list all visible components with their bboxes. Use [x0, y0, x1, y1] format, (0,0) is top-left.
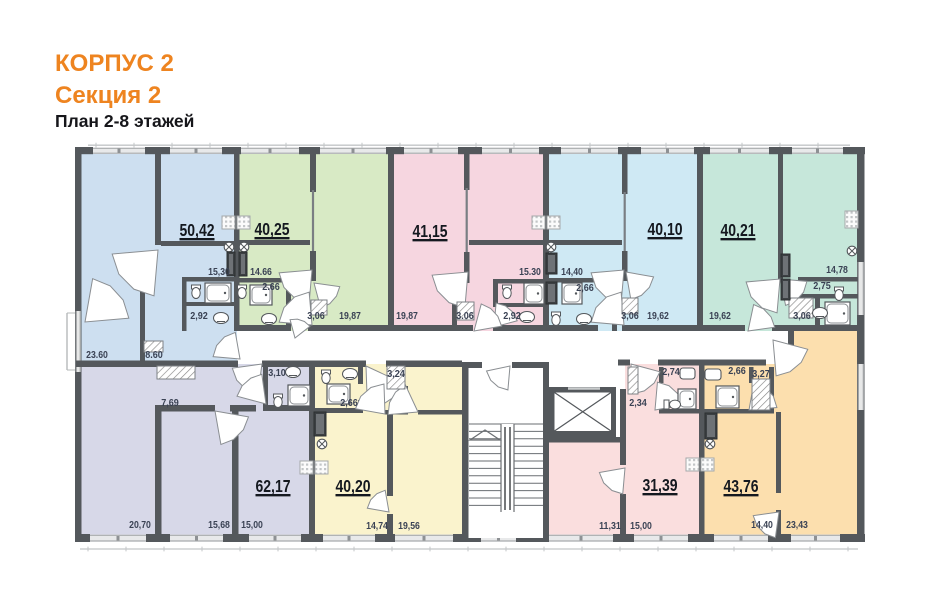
svg-text:14,40: 14,40 — [751, 520, 773, 531]
svg-text:2,34: 2,34 — [629, 398, 647, 409]
svg-text:41,15: 41,15 — [413, 221, 448, 241]
svg-text:40,10: 40,10 — [648, 219, 683, 239]
svg-text:Секция 2: Секция 2 — [55, 82, 161, 109]
svg-text:2,74: 2,74 — [662, 367, 680, 378]
svg-text:19,62: 19,62 — [647, 311, 669, 322]
svg-text:19,56: 19,56 — [398, 521, 420, 532]
svg-text:19,62: 19,62 — [709, 311, 731, 322]
svg-text:15.30: 15.30 — [519, 267, 541, 278]
svg-text:3,24: 3,24 — [387, 369, 405, 380]
svg-text:2,92: 2,92 — [503, 311, 521, 322]
svg-text:15,00: 15,00 — [630, 521, 652, 532]
svg-text:2.66: 2.66 — [262, 282, 280, 293]
svg-text:2,66: 2,66 — [728, 366, 746, 377]
svg-text:43,76: 43,76 — [724, 476, 759, 496]
svg-text:2,66: 2,66 — [576, 283, 594, 294]
svg-text:11,31: 11,31 — [599, 521, 621, 532]
svg-text:2,75: 2,75 — [813, 281, 831, 292]
svg-text:14,78: 14,78 — [826, 265, 848, 276]
svg-text:50,42: 50,42 — [180, 220, 215, 240]
svg-text:2,66: 2,66 — [340, 398, 358, 409]
svg-text:КОРПУС 2: КОРПУС 2 — [55, 50, 174, 77]
svg-text:3,06: 3,06 — [621, 311, 639, 322]
svg-text:20,70: 20,70 — [129, 520, 151, 531]
svg-text:15,00: 15,00 — [241, 520, 263, 531]
svg-text:3,06: 3,06 — [793, 311, 811, 322]
svg-text:3,06: 3,06 — [307, 311, 325, 322]
svg-text:3.06: 3.06 — [456, 311, 474, 322]
svg-text:14,74: 14,74 — [366, 521, 388, 532]
svg-text:8.60: 8.60 — [145, 350, 163, 361]
svg-text:7,69: 7,69 — [161, 398, 179, 409]
svg-text:15,68: 15,68 — [208, 520, 230, 531]
svg-text:2,92: 2,92 — [190, 311, 208, 322]
svg-text:23.60: 23.60 — [86, 350, 108, 361]
svg-text:31,39: 31,39 — [643, 475, 678, 495]
svg-text:23,43: 23,43 — [786, 520, 808, 531]
svg-text:19,87: 19,87 — [396, 311, 418, 322]
svg-text:14,40: 14,40 — [561, 267, 583, 278]
svg-text:62,17: 62,17 — [256, 476, 291, 496]
svg-text:40,20: 40,20 — [336, 476, 371, 496]
svg-text:40,25: 40,25 — [255, 219, 290, 239]
svg-text:19,87: 19,87 — [339, 311, 361, 322]
svg-text:40,21: 40,21 — [721, 220, 756, 240]
svg-text:План 2-8 этажей: План 2-8 этажей — [55, 111, 194, 131]
svg-text:14.66: 14.66 — [250, 267, 272, 278]
svg-text:15,30: 15,30 — [208, 267, 230, 278]
svg-text:3,27: 3,27 — [752, 369, 770, 380]
svg-text:3,10: 3,10 — [268, 368, 286, 379]
